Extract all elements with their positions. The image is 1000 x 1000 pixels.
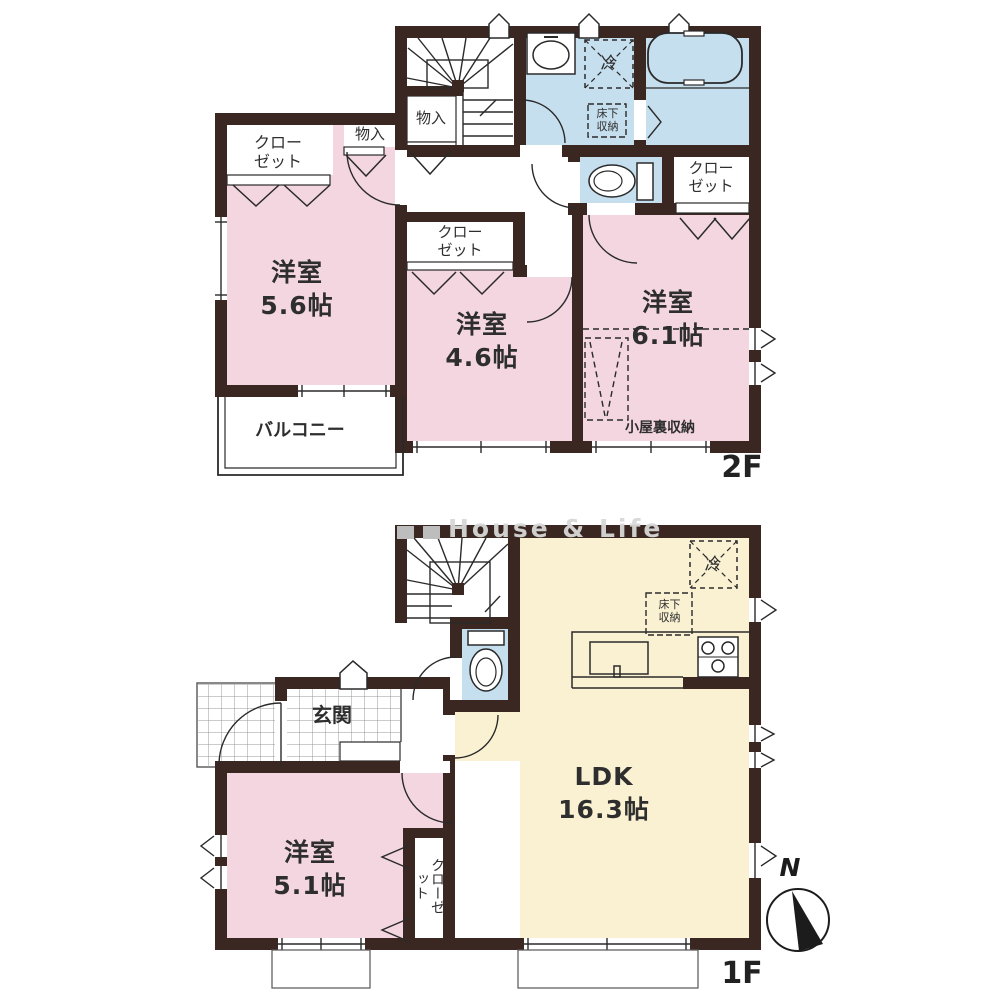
closet-nw-box [227,125,333,175]
closet-east-box [674,157,749,203]
floorplan-drawing [0,0,1000,1000]
room-1f-ldk [520,538,749,938]
balcony-outline [218,397,403,475]
storage2-box [407,96,456,142]
bathtub-icon [648,33,742,83]
closet-nw-front [227,175,330,185]
floor-2f-rooms [227,38,749,441]
compass-icon [767,889,829,951]
closet-mid-front [407,262,513,270]
entrance-step [340,742,400,761]
storage1-front [344,147,384,155]
stairs-1f-icon [407,538,508,623]
room-2f-bedroom-46 [407,270,572,441]
toilet-1f-icon [468,631,504,691]
floorplan-page: クローゼット 物入 物入 冷 床下収納 クローゼット クローゼット 洋室 5.6… [0,0,1000,1000]
stove-icon [698,637,738,677]
closet-mid-box [407,222,513,262]
room-2f-bedroom-61 [583,215,749,441]
storage1-box [344,125,397,147]
room-1f-ldk-passage [455,712,520,761]
closet-1f-box [415,838,443,938]
toilet-2f-icon [589,163,653,200]
vent-icon-1f [340,661,367,689]
